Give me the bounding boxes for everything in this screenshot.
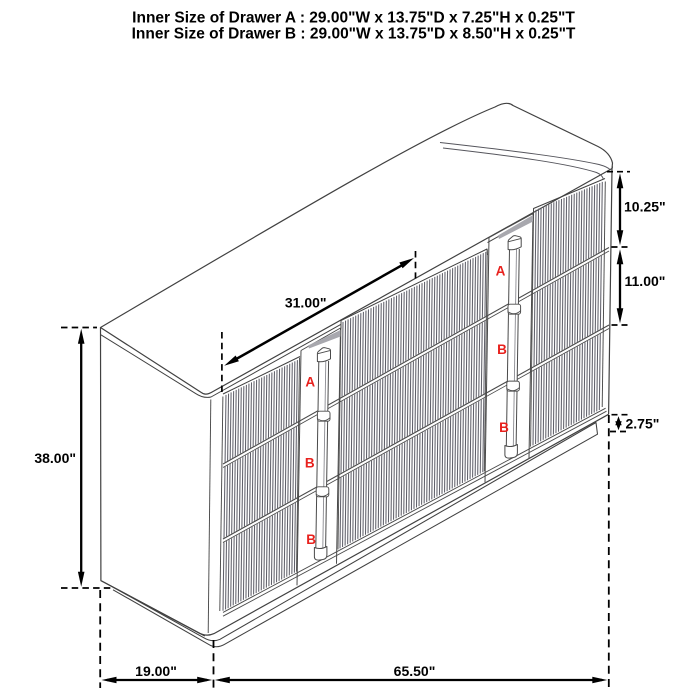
svg-text:B: B [497,342,507,357]
svg-text:65.50": 65.50" [394,663,436,679]
svg-text:10.25": 10.25" [624,199,666,215]
svg-text:31.00": 31.00" [285,295,327,311]
svg-text:Inner Size of Drawer A : 29.00: Inner Size of Drawer A : 29.00"W x 13.75… [132,9,575,26]
svg-text:11.00": 11.00" [625,273,666,289]
svg-text:B: B [305,456,315,471]
svg-text:A: A [305,375,315,390]
svg-text:B: B [306,532,316,547]
svg-text:38.00": 38.00" [34,450,76,466]
svg-text:2.75": 2.75" [626,416,660,432]
svg-text:A: A [496,263,506,278]
svg-text:Inner Size of Drawer B : 29.00: Inner Size of Drawer B : 29.00"W x 13.75… [132,26,576,43]
svg-text:B: B [499,420,509,435]
svg-text:19.00": 19.00" [135,663,177,679]
